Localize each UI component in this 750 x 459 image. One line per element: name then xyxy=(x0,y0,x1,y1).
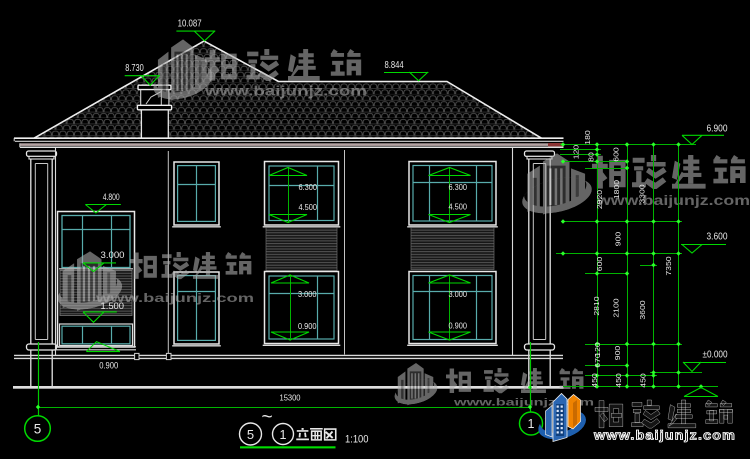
svg-text:0.900: 0.900 xyxy=(99,361,118,371)
svg-text:1.500: 1.500 xyxy=(101,301,125,311)
svg-text:~: ~ xyxy=(261,407,272,428)
svg-text:0.900: 0.900 xyxy=(298,322,317,331)
svg-text:www.baijunjz.com: www.baijunjz.com xyxy=(593,429,736,443)
svg-text:3.000: 3.000 xyxy=(298,290,317,299)
svg-text:450: 450 xyxy=(614,373,623,387)
svg-text:1: 1 xyxy=(280,428,287,442)
svg-text:6.300: 6.300 xyxy=(299,183,318,192)
svg-text:900: 900 xyxy=(614,232,623,246)
svg-text:www.baijunjz.com: www.baijunjz.com xyxy=(204,84,367,99)
svg-text:5: 5 xyxy=(247,427,254,442)
svg-text:670: 670 xyxy=(593,353,602,367)
svg-text:450: 450 xyxy=(590,373,599,387)
svg-text:±0.000: ±0.000 xyxy=(703,350,728,361)
svg-text:6.300: 6.300 xyxy=(449,183,468,192)
svg-text:3.600: 3.600 xyxy=(707,232,728,243)
svg-text:450: 450 xyxy=(639,373,648,387)
svg-text:6.900: 6.900 xyxy=(707,123,728,134)
svg-text:80: 80 xyxy=(587,152,596,162)
svg-text:15300: 15300 xyxy=(280,392,301,402)
svg-text:10.087: 10.087 xyxy=(178,19,202,30)
svg-text:8.730: 8.730 xyxy=(125,63,144,74)
svg-text:2920: 2920 xyxy=(595,190,604,209)
svg-text:180: 180 xyxy=(583,130,592,144)
svg-text:1: 1 xyxy=(528,417,535,431)
svg-text:0.900: 0.900 xyxy=(449,321,468,330)
svg-text:900: 900 xyxy=(613,346,622,360)
svg-text:7350: 7350 xyxy=(664,256,673,275)
svg-text:3.000: 3.000 xyxy=(101,250,125,260)
svg-text:4.800: 4.800 xyxy=(103,192,120,202)
svg-text:2100: 2100 xyxy=(612,298,621,317)
svg-text:3.000: 3.000 xyxy=(449,290,468,299)
svg-text:2810: 2810 xyxy=(592,296,601,315)
svg-text:8.844: 8.844 xyxy=(385,60,404,71)
svg-text:5: 5 xyxy=(34,422,42,437)
svg-text:120: 120 xyxy=(572,145,581,159)
svg-text:3300: 3300 xyxy=(638,184,647,203)
svg-text:3600: 3600 xyxy=(638,300,647,319)
svg-text:4.500: 4.500 xyxy=(449,203,468,212)
svg-text:600: 600 xyxy=(612,147,621,161)
svg-text:1:100: 1:100 xyxy=(345,433,369,445)
svg-text:1800: 1800 xyxy=(612,180,621,199)
svg-text:4.500: 4.500 xyxy=(299,203,318,212)
svg-text:600: 600 xyxy=(595,257,604,271)
